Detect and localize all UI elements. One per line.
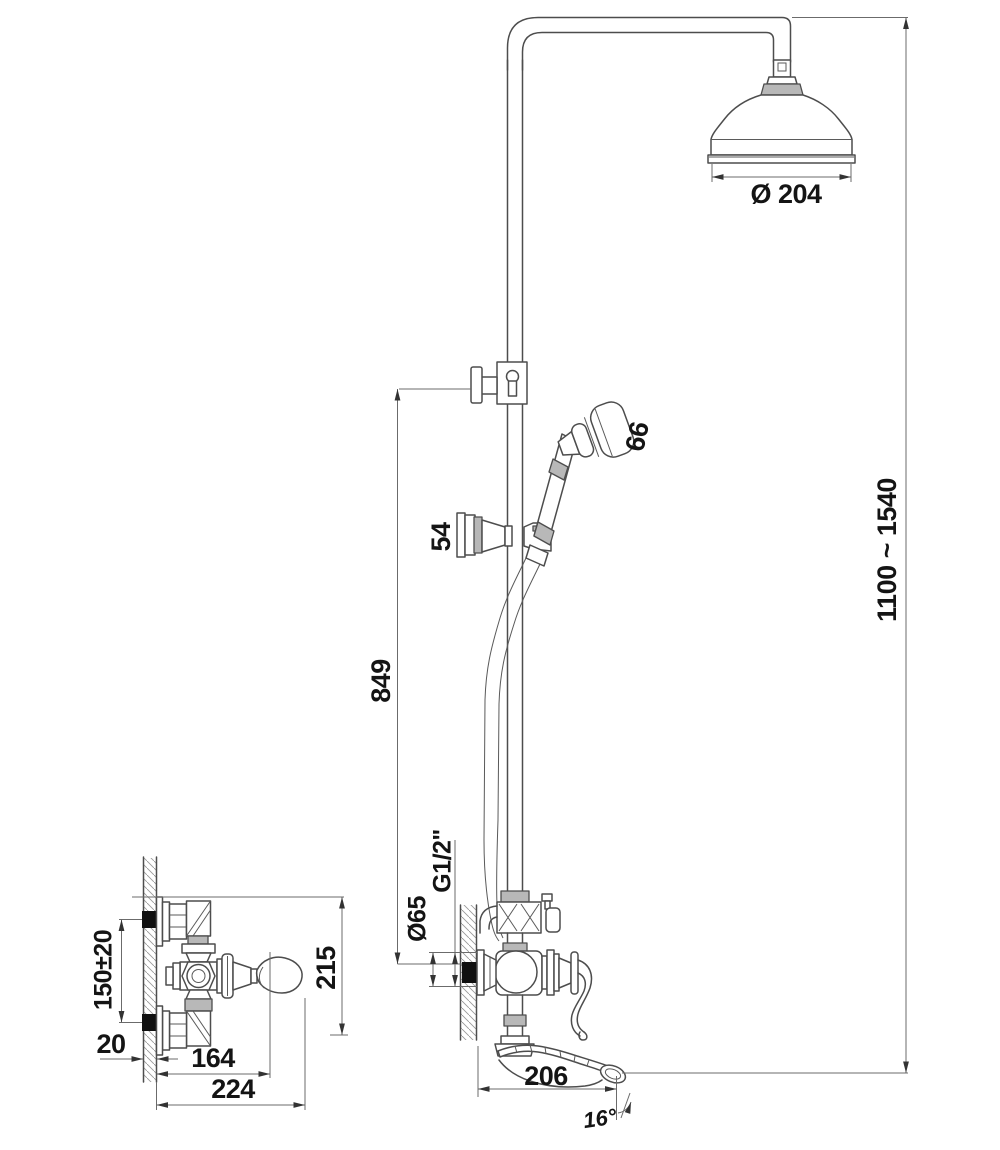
- dim-224: 224: [211, 1074, 255, 1104]
- wall-section-main: [461, 905, 478, 1040]
- dim-164: 164: [191, 1043, 235, 1073]
- inlet-union-top: [142, 911, 157, 928]
- dim-spout-angle: 16°: [582, 1104, 619, 1133]
- diverter: [480, 891, 560, 952]
- main-view: Ø 204 849 1100 ~ 1540 Ø65 G1/2" 54: [366, 18, 908, 1134]
- dimension-inlet-span: 150±20: [90, 920, 142, 1023]
- dim-spout-reach: 206: [524, 1061, 568, 1091]
- diverter-knob: [546, 908, 560, 932]
- dimension-overall-height: 1100 ~ 1540: [622, 18, 908, 1074]
- mixer-front: [157, 897, 303, 1055]
- mixer-ball: [495, 951, 537, 993]
- dim-riser-height: 849: [366, 659, 396, 703]
- dim-wall-thickness: 20: [96, 1029, 125, 1059]
- dim-handshower: 66: [619, 419, 654, 454]
- mixer-main: [477, 950, 592, 1040]
- slider-knob-stem: [481, 377, 497, 394]
- inlet-union-bottom: [142, 1014, 157, 1031]
- dim-escutcheon: Ø65: [404, 896, 432, 942]
- dim-215: 215: [311, 946, 341, 990]
- dim-overall-height: 1100 ~ 1540: [872, 478, 902, 622]
- aerator-front: [173, 963, 180, 989]
- dim-thread: G1/2": [429, 829, 457, 893]
- dim-holder: 54: [426, 522, 456, 552]
- front-view: 150±20 20 164 224 215: [90, 857, 348, 1110]
- dim-inlet-span: 150±20: [90, 930, 118, 1010]
- wall-section-front: [142, 857, 157, 1082]
- hand-shower: [526, 398, 637, 566]
- lever-handle-front: [217, 954, 302, 998]
- dimension-head-diameter: Ø 204: [712, 164, 851, 209]
- dimension-holder: 54: [426, 522, 456, 552]
- wall-union: [462, 962, 477, 983]
- slider-clamp: [471, 362, 527, 404]
- dimension-handshower: 66: [619, 419, 654, 454]
- slider-knob: [471, 367, 482, 403]
- lever-main: [577, 960, 591, 1032]
- technical-drawing-page: 150±20 20 164 224 215: [0, 0, 1000, 1150]
- shower-head: [708, 60, 855, 163]
- dim-head-diameter: Ø 204: [750, 179, 822, 209]
- diverter-knob-cap: [542, 894, 552, 901]
- shower-hose: [484, 558, 540, 941]
- technical-drawing-canvas: 150±20 20 164 224 215: [0, 0, 1000, 1150]
- dimension-spout-angle: 16°: [582, 1093, 631, 1133]
